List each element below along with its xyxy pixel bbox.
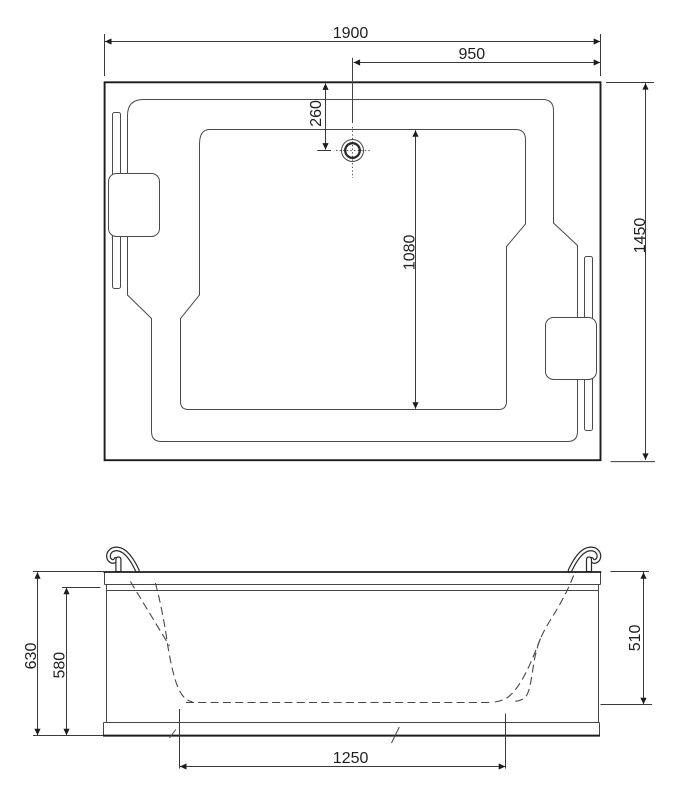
svg-text:510: 510 xyxy=(627,624,644,651)
svg-text:580: 580 xyxy=(51,652,68,679)
svg-text:1900: 1900 xyxy=(333,25,369,42)
svg-text:1450: 1450 xyxy=(632,218,649,254)
svg-text:1250: 1250 xyxy=(333,750,369,767)
svg-text:630: 630 xyxy=(23,643,40,670)
svg-text:260: 260 xyxy=(308,100,325,127)
svg-text:1080: 1080 xyxy=(402,235,419,271)
svg-text:950: 950 xyxy=(458,46,485,63)
